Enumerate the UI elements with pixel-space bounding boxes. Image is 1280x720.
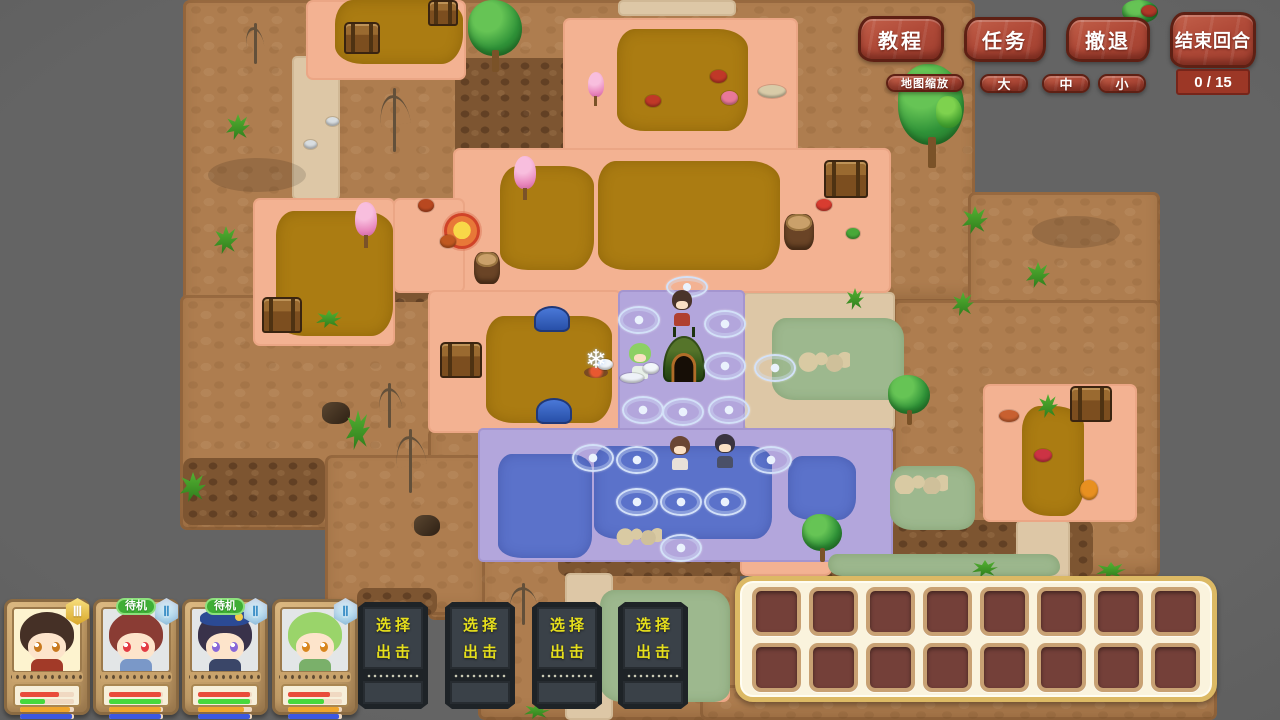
inventory-slot-15[interactable] <box>1094 643 1143 692</box>
stat-bar <box>198 692 252 697</box>
inventory-slot-7[interactable] <box>1094 587 1143 636</box>
map-region-shade <box>208 158 306 192</box>
chibi-body <box>299 659 331 673</box>
treasure-chest-icon[interactable] <box>1070 386 1112 422</box>
snowflake-tile-icon <box>708 396 750 424</box>
stat-bar <box>288 692 342 697</box>
tutorial-button[interactable]: 教程 <box>858 16 944 62</box>
treasure-chest-icon[interactable] <box>440 342 482 378</box>
inventory-slot-8[interactable] <box>1151 587 1200 636</box>
stat-bar <box>20 707 74 712</box>
chibi-body <box>31 659 63 673</box>
inventory-slot-6[interactable] <box>1037 587 1086 636</box>
stat-bar <box>109 714 163 719</box>
map-character[interactable] <box>715 434 735 468</box>
inventory-slot-12[interactable] <box>923 643 972 692</box>
character-face <box>674 446 685 453</box>
party-card-char-2[interactable]: Ⅱ待机 <box>93 599 179 715</box>
inventory-slot-3[interactable] <box>866 587 915 636</box>
blue-shell-icon <box>534 306 570 332</box>
chibi-eye <box>141 642 149 652</box>
chibi-body <box>209 659 241 673</box>
ground-item-icon <box>1034 449 1052 462</box>
snowflake-tile-icon <box>660 534 702 562</box>
map-region-blue <box>498 454 592 558</box>
stat-bar <box>198 699 252 704</box>
character-body <box>674 313 689 326</box>
ground-item-icon <box>816 199 832 211</box>
map-zoom-medium-button[interactable]: 中 <box>1042 74 1090 93</box>
chibi-eye <box>302 642 310 652</box>
rock-icon <box>414 515 440 536</box>
snowflake-tile-icon <box>616 446 658 474</box>
snowflake-tile-icon <box>750 446 792 474</box>
game-screen: 教程 任务 撤退 结束回合 0 / 15 地图缩放 大 中 小 ⅢⅡ待机Ⅱ待机Ⅱ… <box>0 0 1280 720</box>
dead-tree-icon <box>242 20 266 64</box>
dead-tree-icon <box>390 425 430 493</box>
snowflake-tile-icon <box>704 310 746 338</box>
snowflake-tile-icon <box>704 488 746 516</box>
party-card-char-3[interactable]: Ⅱ待机 <box>182 599 268 715</box>
map-region-green <box>600 590 730 702</box>
tree-icon <box>802 514 842 562</box>
snowflake-tile-icon <box>660 488 702 516</box>
stat-bar <box>288 714 342 719</box>
standby-label: 待机 <box>116 598 156 615</box>
inventory-panel <box>735 576 1217 702</box>
map-region-cliff <box>357 588 437 615</box>
dead-tree-icon <box>505 580 541 625</box>
stat-bar <box>288 699 342 704</box>
stump-icon <box>784 214 814 250</box>
ground-item-icon <box>710 70 727 83</box>
card-divider <box>189 672 261 682</box>
stat-bar <box>288 707 342 712</box>
stat-bar <box>198 707 252 712</box>
bush-icon <box>936 96 962 128</box>
stat-bar <box>20 714 74 719</box>
character-face <box>634 354 646 362</box>
card-divider <box>100 672 172 682</box>
ground-item-icon <box>999 410 1019 422</box>
card-divider <box>279 672 351 682</box>
tree-icon <box>888 375 930 425</box>
map-region-mustard <box>617 29 748 131</box>
stat-bars <box>191 684 259 707</box>
map-region-mustard <box>598 161 780 270</box>
chibi-eye <box>52 642 60 652</box>
chibi-eye <box>123 642 131 652</box>
ground-item-icon <box>440 235 456 248</box>
ground-item-icon <box>620 373 644 383</box>
stat-bar <box>109 692 163 697</box>
bones-icon <box>616 527 662 545</box>
chibi-eye <box>212 642 220 652</box>
ground-item-icon <box>758 85 786 98</box>
ground-item-icon <box>846 228 860 239</box>
snowflake-tile-icon <box>616 488 658 516</box>
card-divider <box>11 672 83 682</box>
chibi-eye <box>34 642 42 652</box>
turn-counter: 0 / 15 <box>1176 69 1250 95</box>
inventory-slot-11[interactable] <box>866 643 915 692</box>
stat-bar <box>198 714 252 719</box>
dead-tree-icon <box>374 380 404 428</box>
inventory-slot-16[interactable] <box>1151 643 1200 692</box>
pink-tree-icon <box>585 72 607 106</box>
ground-item-icon <box>1080 480 1098 500</box>
inventory-slot-1[interactable] <box>752 587 801 636</box>
stat-bars <box>281 684 349 707</box>
character-body <box>717 456 732 468</box>
chibi-body <box>120 659 152 673</box>
ground-item-icon <box>304 140 317 149</box>
bones-icon <box>798 350 850 372</box>
pink-tree-icon <box>511 156 539 200</box>
stat-bars <box>102 684 170 707</box>
map-region-shade <box>1032 216 1120 248</box>
snowflake-tile-icon <box>572 444 614 472</box>
map-region-cliff <box>183 458 325 525</box>
inventory-slot-13[interactable] <box>980 643 1029 692</box>
inventory-slot-14[interactable] <box>1037 643 1086 692</box>
map-character[interactable] <box>670 436 690 470</box>
character-face <box>719 444 730 451</box>
ground-item-icon <box>418 199 434 212</box>
retreat-button[interactable]: 撤退 <box>1066 17 1150 62</box>
standby-label: 待机 <box>205 598 245 615</box>
tasks-button[interactable]: 任务 <box>964 17 1046 62</box>
snowflake-tile-icon <box>618 306 660 334</box>
snowflake-tile-icon <box>662 398 704 426</box>
inventory-slot-5[interactable] <box>980 587 1029 636</box>
character-body <box>672 458 687 470</box>
ground-item-icon <box>326 117 339 126</box>
blue-shell-icon <box>536 398 572 424</box>
inventory-slot-4[interactable] <box>923 587 972 636</box>
stat-bars <box>13 684 81 707</box>
stat-bar <box>109 699 163 704</box>
chibi-eye <box>230 642 238 652</box>
stat-bar <box>20 692 74 697</box>
map-region-mustard <box>1022 406 1084 516</box>
ground-item-icon <box>721 91 738 105</box>
ground-item-icon <box>643 363 659 374</box>
map-character[interactable] <box>672 290 692 326</box>
treasure-chest-icon[interactable] <box>262 297 302 333</box>
chibi-eye <box>320 642 328 652</box>
inventory-slot-2[interactable] <box>809 587 858 636</box>
party-card-char-1[interactable]: Ⅲ <box>4 599 90 715</box>
treasure-chest-icon[interactable] <box>428 0 458 26</box>
party-card-char-4[interactable]: Ⅱ <box>272 599 358 715</box>
map-zoom-large-button[interactable]: 大 <box>980 74 1028 93</box>
ground-item-icon <box>1141 5 1157 17</box>
inventory-slot-9[interactable] <box>752 643 801 692</box>
end-turn-button[interactable]: 结束回合 <box>1170 12 1256 68</box>
map-region-beige <box>618 0 736 16</box>
map-region-blue <box>788 456 856 520</box>
bones-icon <box>894 474 948 494</box>
ground-item-icon <box>645 95 661 107</box>
dead-tree-icon <box>374 84 414 152</box>
treasure-chest-icon[interactable] <box>824 160 868 198</box>
pink-tree-icon <box>352 202 380 248</box>
stat-bar <box>20 699 74 704</box>
tree-icon <box>468 0 522 72</box>
map-zoom-small-button[interactable]: 小 <box>1098 74 1146 93</box>
map-region-green <box>828 554 1060 576</box>
snowflake-tile-icon <box>622 396 664 424</box>
stump-icon <box>474 252 500 284</box>
snowflake-tile-icon <box>754 354 796 382</box>
map-zoom-label: 地图缩放 <box>886 74 964 92</box>
character-face <box>676 301 687 309</box>
snowflake-tile-icon <box>704 352 746 380</box>
inventory-slot-10[interactable] <box>809 643 858 692</box>
rock-icon <box>322 402 350 424</box>
treasure-chest-icon[interactable] <box>344 22 380 54</box>
stat-bar <box>109 707 163 712</box>
